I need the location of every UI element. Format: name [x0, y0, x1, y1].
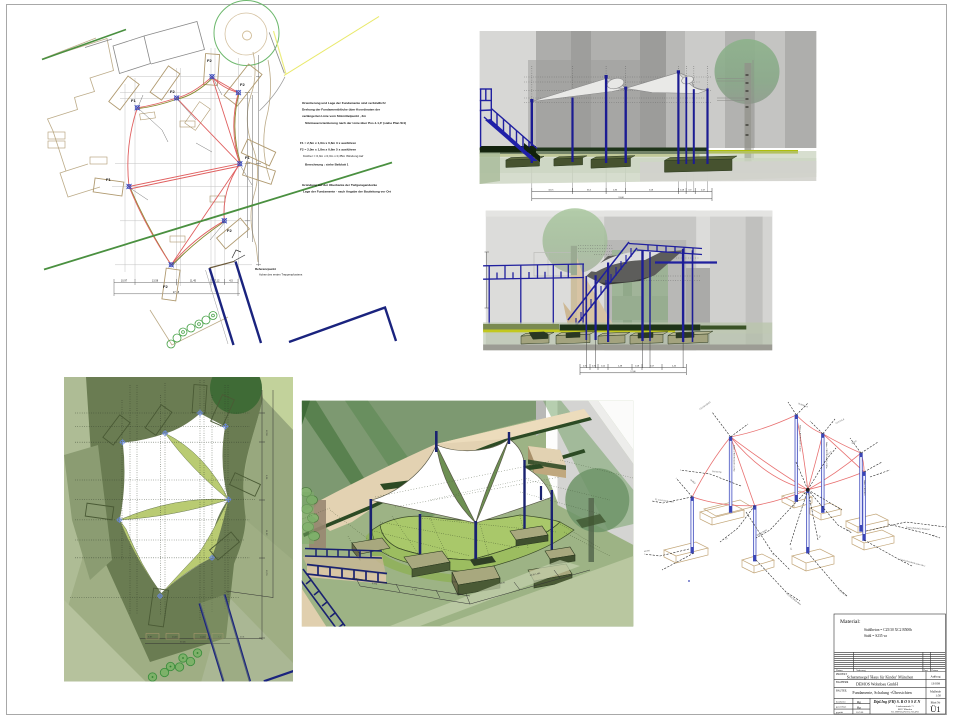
svg-text:Tel. 089/7214702 Fax 7214703: Tel. 089/7214702 Fax 7214703 — [891, 712, 919, 714]
svg-text:7,12: 7,12 — [215, 280, 220, 283]
svg-text:11,45: 11,45 — [190, 280, 197, 283]
svg-text:Stütze 1 RO 88.9x3.6 l=4.60m: Stütze 1 RO 88.9x3.6 l=4.60m — [799, 425, 802, 452]
svg-text:Lindwurmstraße 71: Lindwurmstraße 71 — [896, 705, 913, 708]
svg-text:17,06: 17,06 — [630, 371, 636, 373]
svg-text:Auftrag: Auftrag — [931, 675, 941, 679]
svg-text:F1: F1 — [106, 177, 111, 182]
svg-text:Lage der Fundamente - nach An: Lage der Fundamente - nach Angabe der Ba… — [303, 190, 391, 194]
svg-text:Gründung auf der Oberkante der: Gründung auf der Oberkante der Tiefgarag… — [302, 183, 377, 187]
svg-text:geprüft: geprüft — [836, 711, 843, 714]
svg-text:F2: F2 — [163, 284, 168, 289]
svg-text:Stahl = S235 va: Stahl = S235 va — [864, 634, 887, 638]
svg-text:Drehung der Fundamentblöcke ü: Drehung der Fundamentblöcke über Koordin… — [302, 108, 381, 112]
svg-text:BAUTEIL: BAUTEIL — [836, 689, 848, 692]
svg-text:13,08: 13,08 — [618, 197, 624, 199]
svg-text:Stütze 3 RO 88.9x3.6 l=3.80m: Stütze 3 RO 88.9x3.6 l=3.80m — [825, 442, 828, 469]
svg-text:Stütze 2 RO 88.9x3.6 l=3.75m: Stütze 2 RO 88.9x3.6 l=3.75m — [733, 445, 736, 472]
svg-text:Dipl.Ing (FH) S. R O S S E N: Dipl.Ing (FH) S. R O S S E N — [873, 700, 921, 704]
svg-text:Schattensegel 'Haus für Kinde: Schattensegel 'Haus für Kinder' München — [847, 675, 914, 680]
svg-text:mit: mit — [932, 534, 935, 537]
svg-text:Rg: Rg — [856, 705, 861, 709]
svg-text:F2: F2 — [207, 58, 212, 63]
svg-text:F1: F1 — [131, 98, 136, 103]
svg-text:Material:: Material: — [840, 619, 861, 625]
svg-text:11,52: 11,52 — [265, 530, 267, 536]
svg-text:80337 München: 80337 München — [898, 708, 913, 711]
svg-text:Rg: Rg — [856, 700, 861, 704]
svg-text:bearbeitet: bearbeitet — [836, 700, 846, 703]
svg-text:Zust: Zust — [924, 669, 929, 672]
svg-text:Datum: Datum — [932, 669, 939, 672]
svg-text:10,76: 10,76 — [265, 570, 267, 576]
svg-text:F2: F2 — [170, 89, 175, 94]
svg-text:DEMOS Wohnbau GmbH: DEMOS Wohnbau GmbH — [856, 682, 898, 687]
svg-text:Berechnung : siehe Beiblatt 1: Berechnung : siehe Beiblatt 1 — [305, 163, 349, 167]
svg-text:Orientierung und Lage der Fund: Orientierung und Lage der Fundamente sin… — [302, 101, 386, 105]
svg-text:10,97: 10,97 — [121, 280, 128, 283]
svg-text:27,18: 27,18 — [173, 291, 180, 294]
svg-text:Achse des ersten Treppenpfoste: Achse des ersten Treppenpfostens — [259, 273, 303, 277]
svg-text:F1 = 2,5m x 1,6m x 0,6m 3 x a: F1 = 2,5m x 1,6m x 0,6m 3 x ausführen — [300, 141, 356, 145]
svg-text:Köcher = 0,3m x 0,3m x 0,35m: Köcher = 0,3m x 0,3m x 0,35m Windung tie… — [303, 154, 363, 158]
svg-text:Datum: Datum — [836, 669, 843, 672]
svg-text:Ü1: Ü1 — [930, 704, 940, 714]
svg-text:12,08: 12,08 — [265, 430, 267, 436]
svg-text:37,06: 37,06 — [180, 642, 186, 644]
svg-text:verlängerten Linie vom Sitzmit: verlängerten Linie vom Sitzmittelpunkt ,… — [302, 114, 366, 118]
svg-text:4,5: 4,5 — [229, 280, 233, 283]
svg-text:13/038: 13/038 — [931, 682, 940, 686]
svg-text:Stütze 4 RO 88.9: Stütze 4 RO 88.9 — [863, 480, 866, 496]
svg-text:Referenzpunkt: Referenzpunkt — [255, 267, 276, 271]
svg-text:Änderung: Änderung — [856, 669, 866, 672]
svg-text:34,71: 34,71 — [548, 190, 554, 192]
svg-text:Sitzmauerorientierung nach der: Sitzmauerorientierung nach der Linie übe… — [305, 121, 406, 125]
svg-text:13,58: 13,58 — [152, 280, 159, 283]
svg-text:10.7.06: 10.7.06 — [856, 711, 864, 714]
svg-text:F1: F1 — [245, 155, 250, 160]
svg-text:gezeichnet: gezeichnet — [836, 706, 847, 709]
svg-text:1:50: 1:50 — [936, 694, 942, 698]
svg-text:F2: F2 — [240, 82, 245, 87]
svg-text:BAUHERR: BAUHERR — [836, 681, 849, 684]
svg-text:14,02: 14,02 — [200, 637, 206, 639]
svg-text:F2 = 2,0m x 1,8m x 0,6m 5 x a: F2 = 2,0m x 1,8m x 0,6m 5 x ausführen — [300, 148, 356, 152]
svg-text:Stahlbeton = C25/30 XC2 B500: Stahlbeton = C25/30 XC2 B500b — [864, 628, 912, 632]
svg-text:24,00: 24,00 — [172, 637, 178, 639]
svg-text:F2: F2 — [227, 228, 232, 233]
